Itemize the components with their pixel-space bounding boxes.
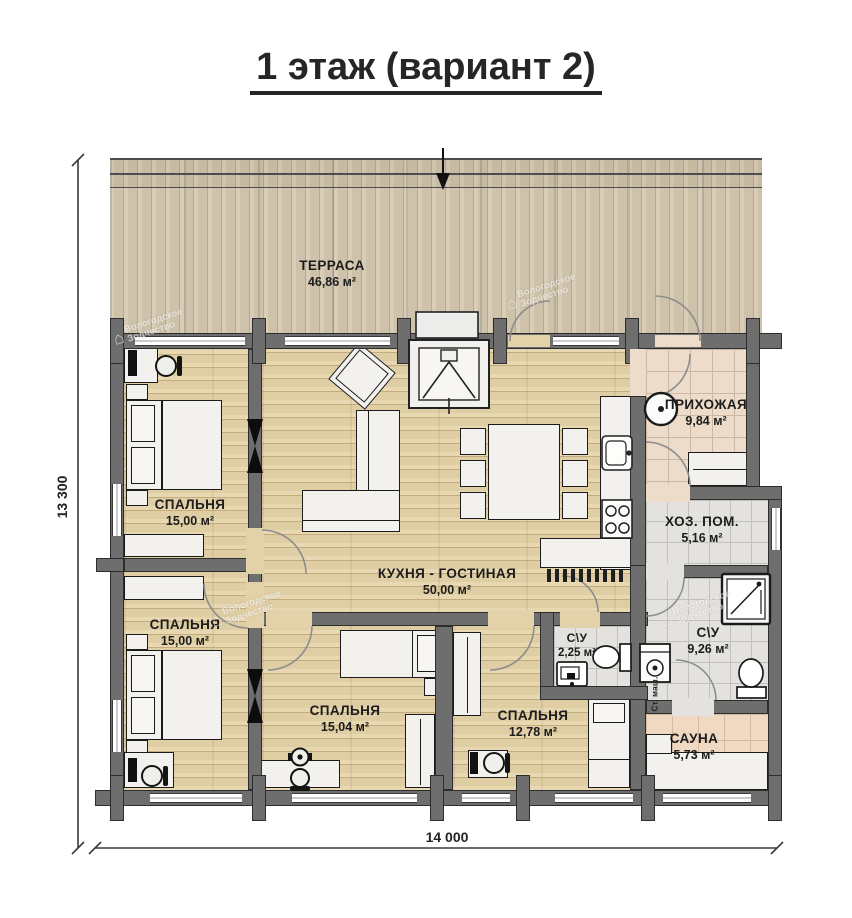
desk	[124, 752, 174, 788]
dining-table	[488, 424, 560, 520]
dresser	[124, 534, 204, 557]
dining-chair	[460, 460, 486, 487]
window	[112, 484, 122, 536]
desk	[468, 750, 508, 778]
dimension-width: 14 000	[426, 829, 469, 845]
room-label-kitchen-living: КУХНЯ - ГОСТИНАЯ 50,00 м²	[378, 566, 516, 599]
door-opening	[646, 563, 684, 580]
log-cross	[768, 775, 782, 821]
window	[555, 793, 633, 803]
dining-chair	[460, 428, 486, 455]
wardrobe	[688, 452, 754, 486]
dresser	[124, 576, 204, 600]
door-opening	[266, 610, 312, 628]
desk	[124, 343, 158, 383]
mattress-line	[412, 631, 413, 677]
pillow	[131, 405, 155, 442]
log-cross	[252, 775, 266, 821]
desk	[258, 760, 340, 788]
pillow	[593, 703, 625, 723]
room-label-utility: ХОЗ. ПОМ. 5,16 м²	[665, 514, 739, 547]
log-cross	[252, 318, 266, 364]
log-cross	[96, 558, 124, 572]
wardrobe-rod	[467, 637, 468, 713]
nightstand	[126, 490, 148, 506]
page-title: 1 этаж (вариант 2)	[0, 46, 852, 89]
washer-label: Ст. маш.	[651, 677, 660, 712]
window	[135, 336, 245, 346]
sauna-bench-side	[646, 734, 672, 754]
log-cross	[430, 775, 444, 821]
window	[553, 336, 619, 346]
room-label-wc-big: С\У 9,26 м²	[687, 625, 728, 658]
log-cross	[397, 318, 411, 364]
wardrobe-rod	[420, 719, 421, 785]
mattress-line	[589, 759, 629, 760]
wall-bedroom4-wetrooms	[630, 565, 646, 790]
pillow	[131, 447, 155, 484]
door-opening	[246, 582, 264, 628]
log-cross	[493, 318, 507, 364]
dining-chair	[562, 460, 588, 487]
room-label-sauna: САУНА 5,73 м²	[670, 731, 719, 764]
room-label-bedroom2: СПАЛЬНЯ 15,00 м²	[150, 617, 221, 650]
terrace-step-band	[110, 158, 762, 188]
window	[112, 700, 122, 752]
room-label-hallway: ПРИХОЖАЯ 9,84 м²	[665, 397, 747, 430]
wall-kitchen-hallway	[630, 396, 646, 568]
single-bed	[588, 698, 630, 788]
double-bed	[126, 400, 222, 490]
log-cross	[641, 775, 655, 821]
dimension-height: 13 300	[54, 476, 70, 519]
pillow	[131, 697, 155, 734]
window	[150, 793, 242, 803]
door-opening	[672, 698, 714, 716]
door-opening	[246, 528, 264, 574]
window	[285, 336, 390, 346]
room-label-terrace: ТЕРРАСА 46,86 м²	[299, 258, 364, 291]
floor-plan-canvas: 1 этаж (вариант 2)	[0, 0, 852, 918]
window	[462, 793, 510, 803]
nightstand	[126, 384, 148, 400]
pillow	[417, 635, 437, 672]
pillow	[131, 655, 155, 692]
dining-chair	[562, 492, 588, 519]
dining-chair	[562, 428, 588, 455]
mattress-line	[161, 651, 163, 739]
log-cross	[110, 775, 124, 821]
log-cross	[110, 318, 124, 364]
room-label-bedroom3: СПАЛЬНЯ 15,04 м²	[310, 703, 381, 736]
wall-bedroom1-bedroom2	[124, 558, 248, 572]
terrace-step-line	[110, 173, 762, 175]
page-title-text: 1 этаж (вариант 2)	[250, 46, 602, 95]
wall-bedroom3-bedroom4	[435, 626, 453, 790]
window	[292, 793, 417, 803]
room-label-wc-small: С\У 2,25 м²	[558, 631, 596, 660]
door-opening	[646, 484, 690, 502]
mattress-line	[161, 401, 163, 489]
room-label-bedroom4: СПАЛЬНЯ 12,78 м²	[498, 708, 569, 741]
door-opening	[630, 349, 646, 396]
wardrobe	[453, 632, 481, 716]
sofa-horizontal	[302, 490, 400, 532]
log-cross	[746, 318, 760, 364]
dining-chair	[460, 492, 486, 519]
sofa-back-line	[303, 520, 399, 521]
single-bed	[340, 630, 442, 678]
room-label-bedroom1: СПАЛЬНЯ 15,00 м²	[155, 497, 226, 530]
door-opening	[560, 610, 600, 628]
window	[771, 508, 781, 550]
door-opening	[508, 335, 550, 347]
window	[663, 793, 751, 803]
door-opening	[488, 610, 534, 628]
front-door-opening	[655, 335, 701, 347]
wardrobe-rod	[693, 469, 751, 470]
log-cross	[516, 775, 530, 821]
double-bed	[126, 650, 222, 740]
kitchen-bar-counter	[540, 538, 632, 568]
nightstand	[126, 634, 148, 650]
wall-wc-small-bottom	[540, 686, 648, 700]
